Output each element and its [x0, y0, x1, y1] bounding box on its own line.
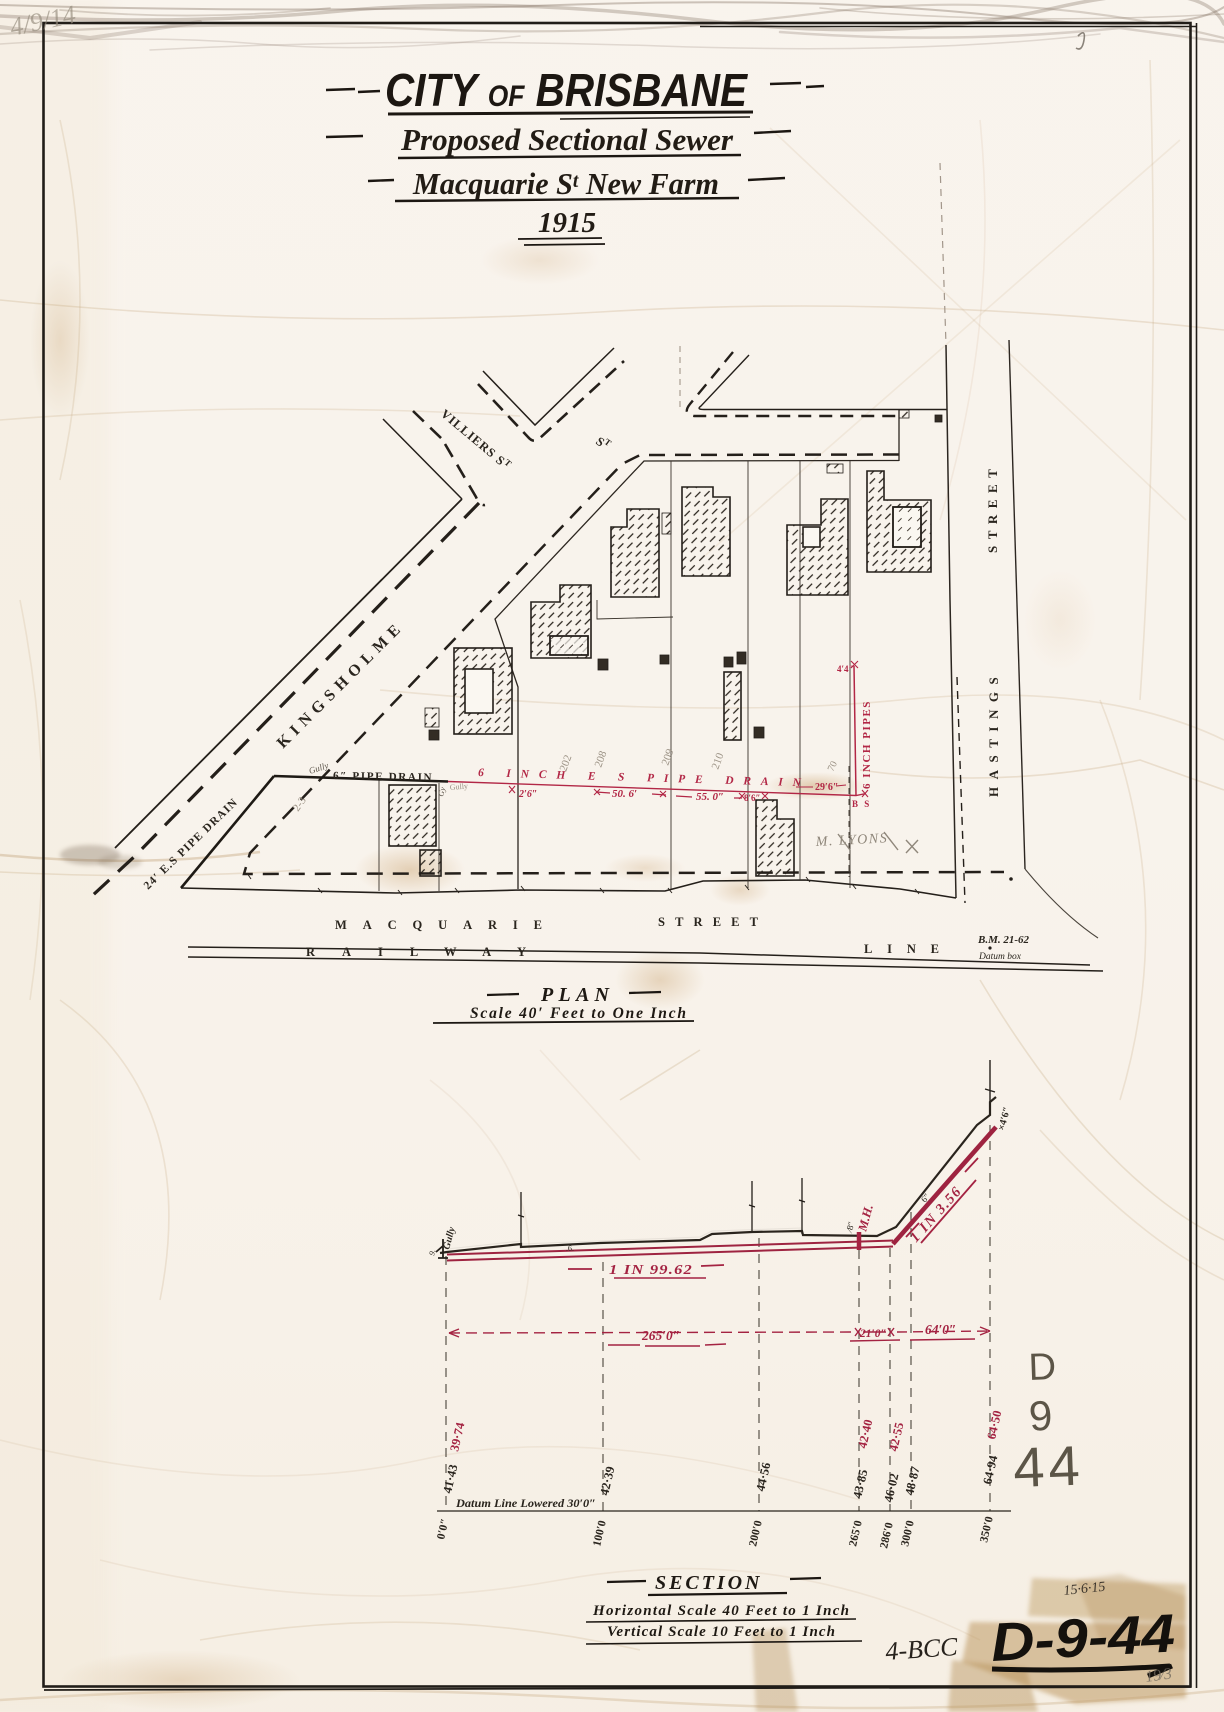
svg-text:2′6″: 2′6″	[518, 789, 537, 800]
svg-text:9: 9	[1027, 1391, 1054, 1440]
svg-text:PLAN: PLAN	[540, 984, 613, 1006]
svg-text:1915: 1915	[538, 208, 596, 239]
svg-text:Horizontal Scale 40 Feet to 1: Horizontal Scale 40 Feet to 1 Inch	[592, 1603, 849, 1619]
svg-text:21′0″: 21′0″	[859, 1328, 887, 1340]
svg-text:CITY OF BRISBANE: CITY OF BRISBANE	[385, 64, 748, 116]
svg-text:LINE: LINE	[864, 942, 954, 956]
svg-text:Macquarie St New Farm: Macquarie St New Farm	[412, 166, 719, 201]
svg-text:D: D	[1028, 1346, 1057, 1389]
svg-text:RAILWAY: RAILWAY	[306, 945, 554, 959]
svg-text:MACQUARIE: MACQUARIE	[335, 918, 553, 932]
svg-text:29′6″: 29′6″	[815, 782, 838, 793]
svg-text:4-BCC: 4-BCC	[884, 1632, 959, 1666]
svg-text:1 IN 99.62: 1 IN 99.62	[609, 1262, 693, 1277]
svg-text:44: 44	[1012, 1434, 1084, 1499]
svg-text:6 INCH PIPES: 6 INCH PIPES	[861, 700, 873, 789]
svg-text:8′6″: 8′6″	[744, 793, 761, 803]
svg-text:265′0″: 265′0″	[641, 1328, 680, 1343]
svg-text:B S: B S	[852, 799, 871, 809]
svg-text:HASTINGS: HASTINGS	[986, 670, 1001, 797]
svg-text:4′4″: 4′4″	[837, 664, 854, 674]
svg-text:6″ PIPE DRAIN: 6″ PIPE DRAIN	[333, 770, 433, 784]
svg-text:55. 0″: 55. 0″	[696, 791, 724, 803]
svg-text:Gully: Gully	[449, 781, 468, 792]
svg-text:B.M. 21-62: B.M. 21-62	[977, 934, 1030, 946]
svg-text:SECTION: SECTION	[655, 1572, 763, 1594]
svg-text:Datum box: Datum box	[978, 952, 1022, 962]
svg-text:.6.: .6.	[566, 1244, 574, 1253]
svg-text:Vertical Scale 10 Feet to 1 In: Vertical Scale 10 Feet to 1 Inch	[607, 1624, 835, 1640]
svg-text:STREET: STREET	[985, 463, 1000, 553]
svg-text:Proposed Sectional Sewer: Proposed Sectional Sewer	[400, 122, 734, 157]
svg-text:D-9-44: D-9-44	[989, 1603, 1176, 1673]
svg-text:64′0″: 64′0″	[925, 1322, 957, 1337]
svg-text:50. 6′: 50. 6′	[612, 788, 637, 800]
svg-text:Datum Line Lowered 30′0″: Datum Line Lowered 30′0″	[455, 1496, 596, 1510]
